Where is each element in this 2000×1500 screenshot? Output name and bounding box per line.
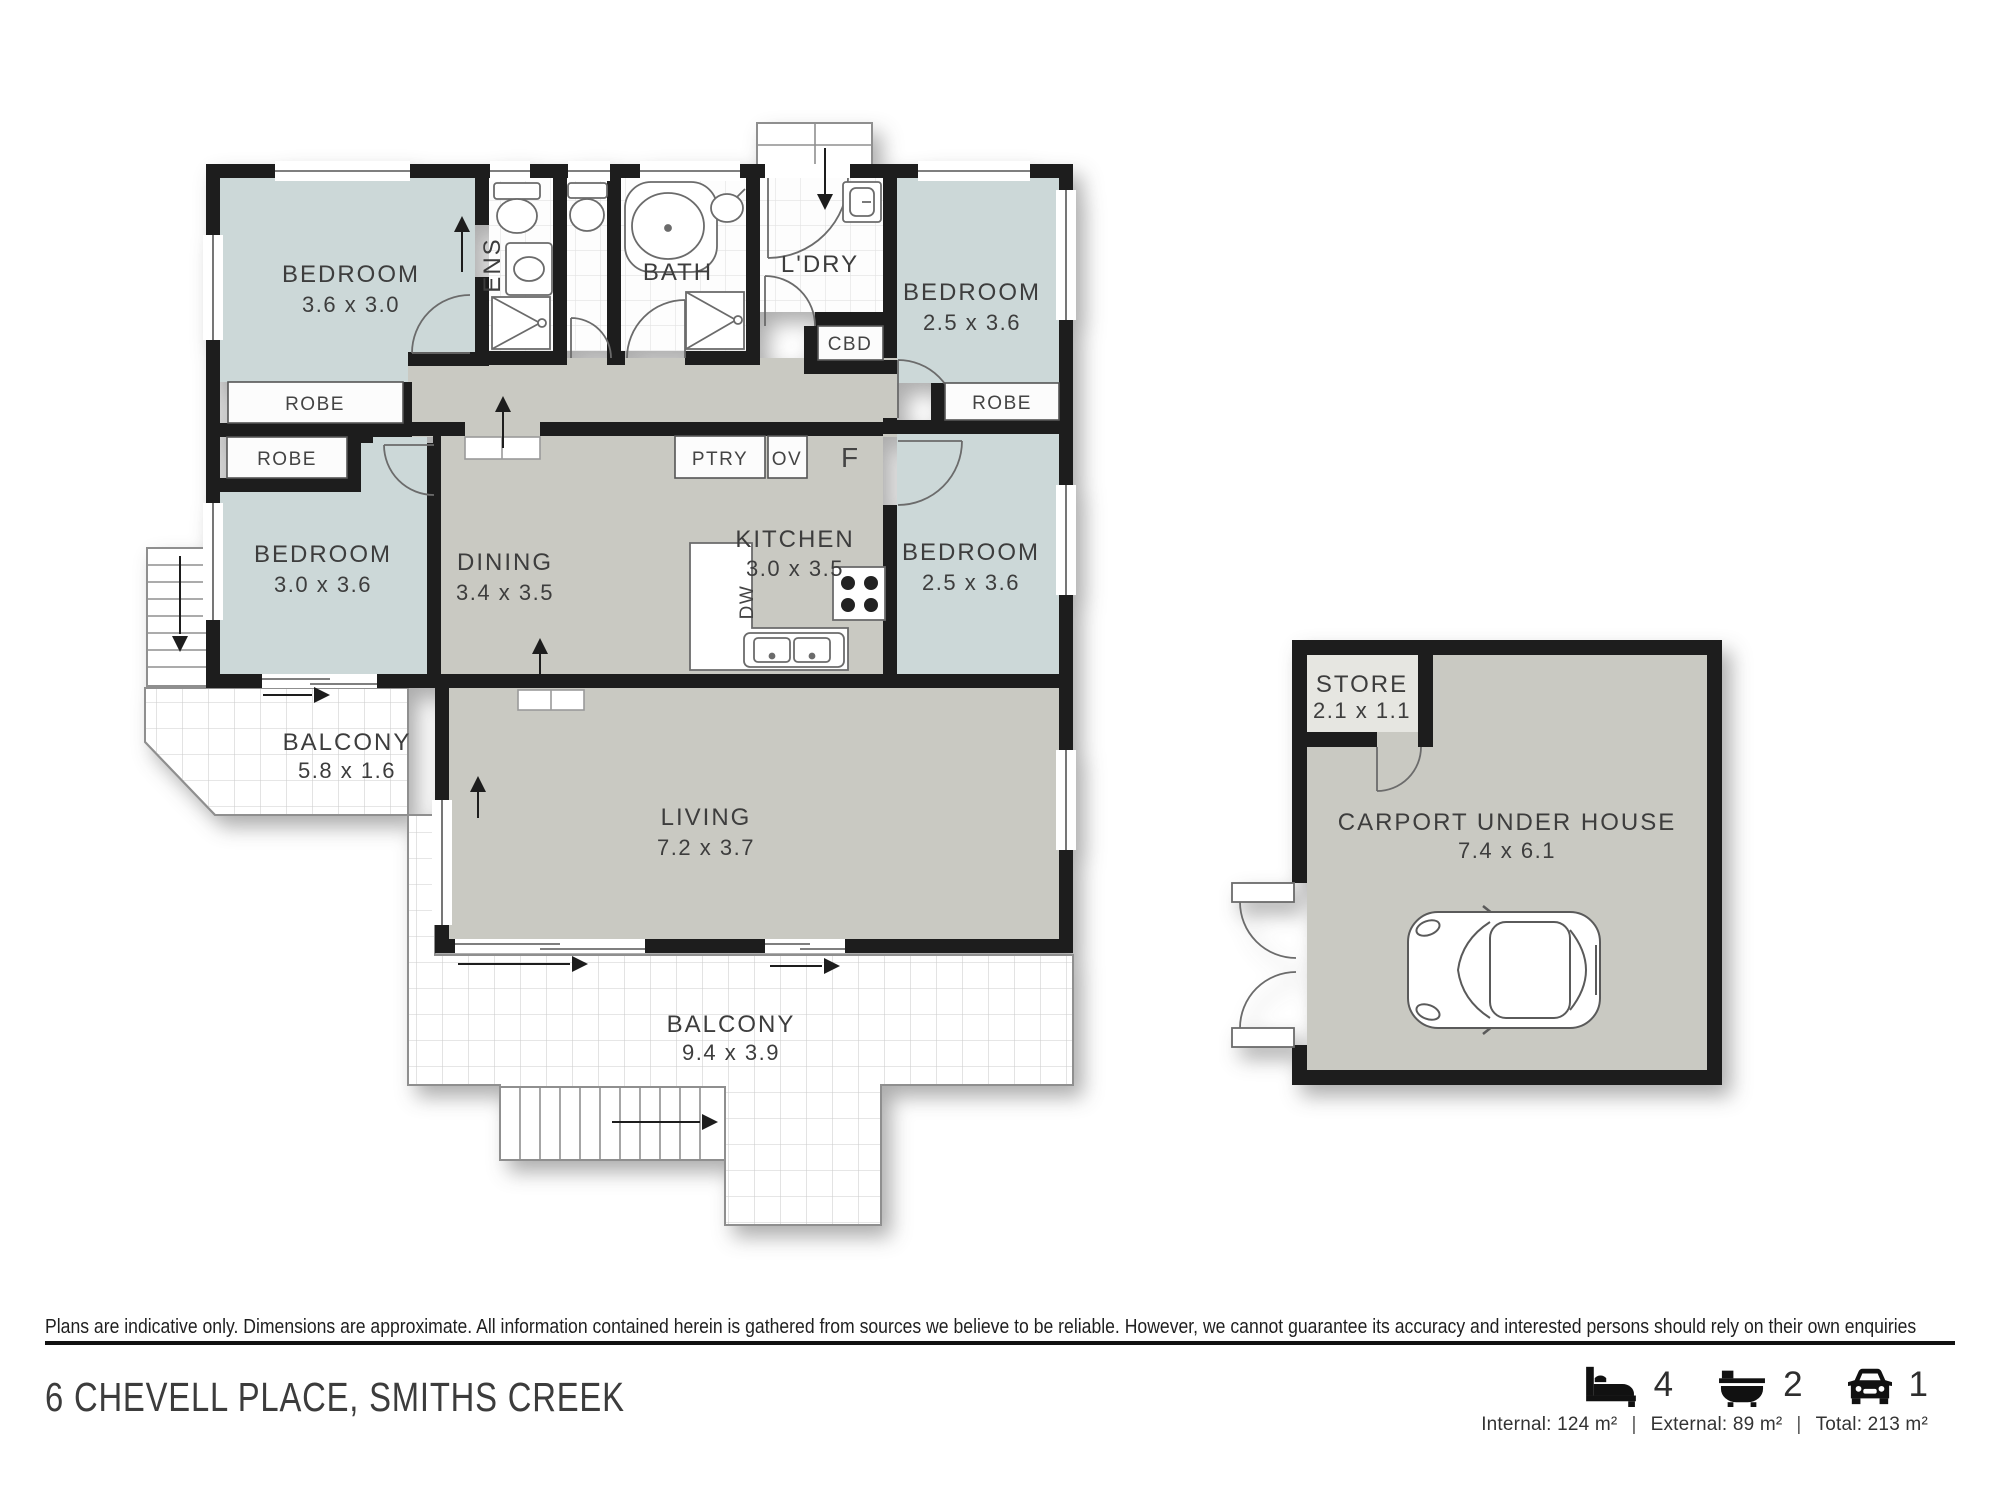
ens-label: ENS (479, 237, 506, 292)
ldry-label: L'DRY (781, 251, 859, 278)
store-dims: 2.1 x 1.1 (1313, 698, 1411, 723)
shower-icon (492, 297, 550, 349)
bedroom1-label: BEDROOM (282, 261, 420, 288)
carport-dims: 7.4 x 6.1 (1458, 838, 1556, 863)
car-icon (1847, 1363, 1893, 1407)
internal-area: Internal: 124 m² (1481, 1414, 1617, 1435)
balcony-upper-dims: 5.8 x 1.6 (298, 758, 396, 783)
bath-icon (1717, 1363, 1767, 1407)
disclaimer-text: Plans are indicative only. Dimensions ar… (45, 1316, 1916, 1339)
cars-count: 1 (1909, 1365, 1928, 1405)
areas-summary: Internal: 124 m²|External: 89 m²|Total: … (1400, 1414, 1928, 1436)
bedroom4-label: BEDROOM (902, 539, 1040, 566)
beds-stat: 4 (1584, 1363, 1673, 1407)
total-area: Total: 213 m² (1816, 1414, 1928, 1435)
carport-block: STORE 2.1 x 1.1 CARPORT UNDER HOUSE 7.4 … (1232, 640, 1722, 1085)
bed-icon (1584, 1363, 1638, 1407)
cars-stat: 1 (1847, 1363, 1928, 1407)
carport-double-door (1232, 883, 1296, 1047)
floorplan-drawing: BEDROOM 3.6 x 3.0 BEDROOM 2.5 x 3.6 BEDR… (0, 0, 2000, 1300)
sink-icon (744, 633, 844, 667)
bedroom2-label: BEDROOM (903, 279, 1041, 306)
fridge-label: F (841, 442, 859, 473)
robe3-label: ROBE (972, 393, 1032, 414)
bedroom1-dims: 3.6 x 3.0 (302, 292, 400, 317)
dining-label: DINING (457, 549, 553, 576)
property-stats: 4 2 (1548, 1363, 1928, 1407)
carport-label: CARPORT UNDER HOUSE (1338, 809, 1677, 836)
bedroom4-dims: 2.5 x 3.6 (922, 570, 1020, 595)
balcony-lower-dims: 9.4 x 3.9 (682, 1040, 780, 1065)
kitchen-label: KITCHEN (735, 526, 854, 553)
beds-count: 4 (1654, 1365, 1673, 1405)
baths-count: 2 (1783, 1365, 1802, 1405)
main-house: BEDROOM 3.6 x 3.0 BEDROOM 2.5 x 3.6 BEDR… (145, 123, 1076, 1225)
bath-label: BATH (643, 259, 713, 286)
baths-stat: 2 (1717, 1363, 1802, 1407)
vanity-basin-icon (506, 243, 552, 295)
dw-label: DW (737, 585, 758, 620)
stairs-bottom (500, 1087, 725, 1160)
living-dims: 7.2 x 3.7 (657, 835, 755, 860)
robe1-label: ROBE (285, 394, 345, 415)
store-label: STORE (1316, 671, 1408, 698)
balcony-upper-label: BALCONY (283, 729, 412, 756)
external-area: External: 89 m² (1651, 1414, 1783, 1435)
ptry-label: PTRY (692, 449, 748, 470)
robe2-label: ROBE (257, 449, 317, 470)
bedroom2-dims: 2.5 x 3.6 (923, 310, 1021, 335)
bath-shower-icon (686, 292, 744, 349)
kitchen-dims: 3.0 x 3.5 (746, 556, 844, 581)
washing-machine-icon (843, 182, 881, 222)
floorplan-page: BEDROOM 3.6 x 3.0 BEDROOM 2.5 x 3.6 BEDR… (0, 0, 2000, 1500)
dining-dims: 3.4 x 3.5 (456, 580, 554, 605)
living-label: LIVING (661, 804, 752, 831)
bedroom3-dims: 3.0 x 3.6 (274, 572, 372, 597)
entry-landing (757, 123, 872, 167)
bedroom3-label: BEDROOM (254, 541, 392, 568)
ov-label: OV (772, 449, 802, 470)
balcony-lower-label: BALCONY (667, 1011, 796, 1038)
car-top-view-icon (1408, 906, 1600, 1034)
footer-divider (45, 1341, 1955, 1345)
toilet-icon (494, 183, 540, 233)
wc-toilet-icon (568, 183, 607, 231)
cbd-label: CBD (828, 334, 873, 355)
property-address: 6 CHEVELL PLACE, SMITHS CREEK (45, 1374, 625, 1421)
